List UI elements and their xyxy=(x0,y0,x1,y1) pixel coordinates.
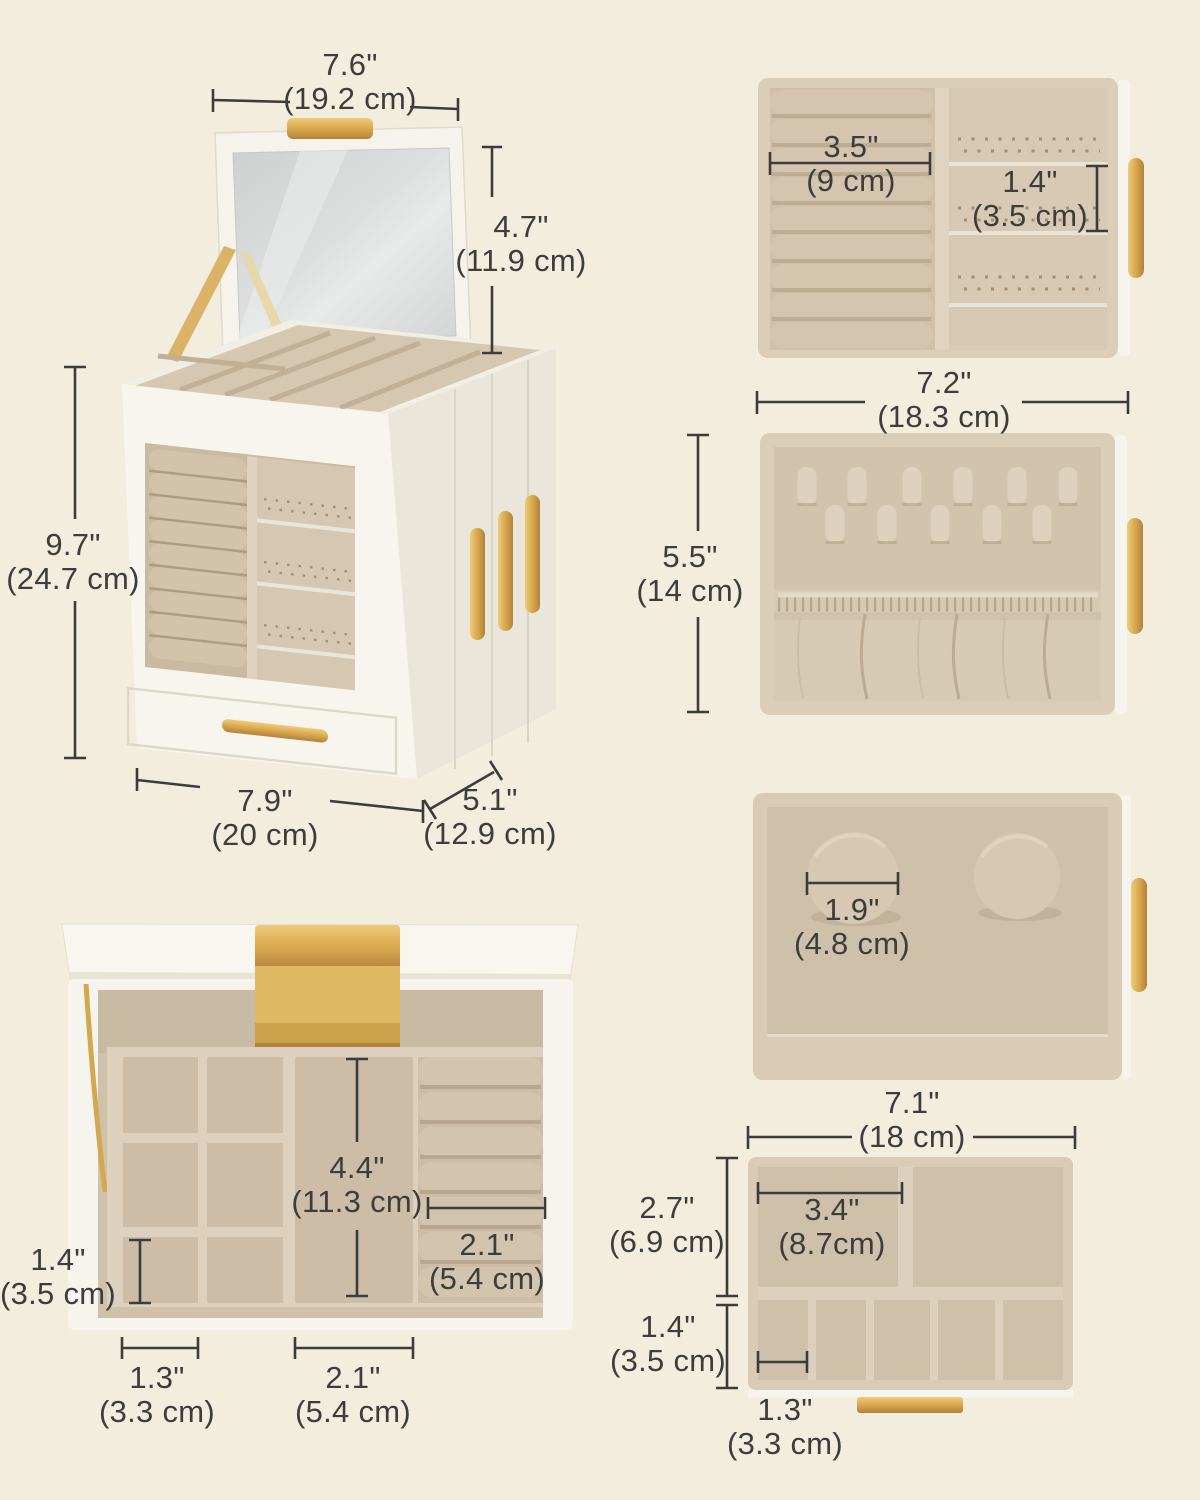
window-ring-rolls xyxy=(149,448,247,668)
dim-metric: (3.3 cm) xyxy=(727,1427,843,1461)
tray-handle-icon xyxy=(1127,518,1143,634)
drawer-handle-icon xyxy=(857,1397,963,1413)
tray-white-edge xyxy=(1115,435,1127,713)
dim-value: 7.9" xyxy=(211,784,318,818)
dim-earring-slot-height: 1.4" (3.5 cm) xyxy=(972,165,1088,232)
dim-value: 4.7" xyxy=(455,210,586,244)
dim-box-top-width: 7.6" (19.2 cm) xyxy=(283,48,417,115)
dim-middle-compartment-depth: 4.4" (11.3 cm) xyxy=(291,1151,422,1218)
dim-metric: (9 cm) xyxy=(806,164,896,198)
dim-value: 5.1" xyxy=(423,783,557,817)
side-handle-icon xyxy=(525,495,540,613)
dim-cushion-diameter: 1.9" (4.8 cm) xyxy=(794,893,910,960)
dim-left-cell-height: 1.4" (3.5 cm) xyxy=(0,1243,116,1310)
tray-white-edge xyxy=(1122,795,1131,1078)
dim-metric: (8.7cm) xyxy=(778,1227,885,1261)
dim-value: 2.1" xyxy=(295,1361,411,1395)
dim-tray-width: 7.2" (18.3 cm) xyxy=(877,366,1011,433)
lid-clasp-icon xyxy=(287,118,373,139)
dim-value: 7.6" xyxy=(283,48,417,82)
dim-metric: (3.5 cm) xyxy=(972,199,1088,233)
dim-value: 3.5" xyxy=(806,130,896,164)
elastic-pouch xyxy=(774,590,1101,701)
dim-metric: (14 cm) xyxy=(636,574,743,608)
dim-value: 7.1" xyxy=(858,1086,965,1120)
side-handle-icon xyxy=(470,528,485,640)
dim-lid-height: 4.7" (11.9 cm) xyxy=(455,210,586,277)
dim-ring-roll-length: 3.5" (9 cm) xyxy=(806,130,896,197)
tray-handle-icon xyxy=(1131,878,1147,992)
dim-metric: (5.4 cm) xyxy=(295,1395,411,1429)
window-earring-shelves xyxy=(257,457,355,690)
dim-roll-section-width: 2.1" (5.4 cm) xyxy=(429,1228,545,1295)
dim-box-depth: 5.1" (12.9 cm) xyxy=(423,783,557,850)
dim-metric: (5.4 cm) xyxy=(429,1262,545,1296)
dim-drawer-bottom-row-height: 1.4" (3.5 cm) xyxy=(610,1310,726,1377)
dim-drawer-small-cell-width: 1.3" (3.3 cm) xyxy=(727,1393,843,1460)
dim-value: 2.7" xyxy=(609,1191,725,1225)
dim-metric: (3.5 cm) xyxy=(610,1344,726,1378)
dim-value: 1.4" xyxy=(0,1243,116,1277)
tray-divider xyxy=(935,88,949,350)
dim-box-height: 9.7" (24.7 cm) xyxy=(6,528,140,595)
dim-drawer-big-cell-width: 3.4" (8.7cm) xyxy=(778,1193,885,1260)
hook-pouch-tray xyxy=(760,433,1143,715)
dim-drawer-width: 7.1" (18 cm) xyxy=(858,1086,965,1153)
dim-metric: (24.7 cm) xyxy=(6,562,140,596)
clasp-icon xyxy=(255,925,400,1048)
dim-value: 4.4" xyxy=(291,1151,422,1185)
dim-value: 1.4" xyxy=(610,1310,726,1344)
dim-value: 1.4" xyxy=(972,165,1088,199)
dim-metric: (19.2 cm) xyxy=(283,82,417,116)
dim-metric: (4.8 cm) xyxy=(794,927,910,961)
dim-metric: (12.9 cm) xyxy=(423,817,557,851)
dim-metric: (3.5 cm) xyxy=(0,1277,116,1311)
dim-middle-compartment-width: 2.1" (5.4 cm) xyxy=(295,1361,411,1428)
dim-value: 2.1" xyxy=(429,1228,545,1262)
dim-value: 7.2" xyxy=(877,366,1011,400)
dim-metric: (11.9 cm) xyxy=(455,244,586,278)
dim-value: 5.5" xyxy=(636,540,743,574)
dim-tray-depth: 5.5" (14 cm) xyxy=(636,540,743,607)
dim-metric: (6.9 cm) xyxy=(609,1225,725,1259)
dim-left-cell-width: 1.3" (3.3 cm) xyxy=(99,1361,215,1428)
dim-value: 3.4" xyxy=(778,1193,885,1227)
dim-metric: (3.3 cm) xyxy=(99,1395,215,1429)
dim-value: 1.9" xyxy=(794,893,910,927)
dim-value: 1.3" xyxy=(99,1361,215,1395)
product-dimensions-diagram: 7.6" (19.2 cm) 4.7" (11.9 cm) 9.7" (24.7… xyxy=(0,0,1200,1500)
dim-metric: (18.3 cm) xyxy=(877,400,1011,434)
dim-metric: (20 cm) xyxy=(211,818,318,852)
dim-box-width: 7.9" (20 cm) xyxy=(211,784,318,851)
dim-drawer-top-row-height: 2.7" (6.9 cm) xyxy=(609,1191,725,1258)
dim-value: 1.3" xyxy=(727,1393,843,1427)
dim-value: 9.7" xyxy=(6,528,140,562)
tray-handle-icon xyxy=(1128,158,1144,278)
dim-metric: (11.3 cm) xyxy=(291,1185,422,1219)
window-divider xyxy=(247,456,257,679)
side-handle-icon xyxy=(498,511,513,631)
dim-metric: (18 cm) xyxy=(858,1120,965,1154)
